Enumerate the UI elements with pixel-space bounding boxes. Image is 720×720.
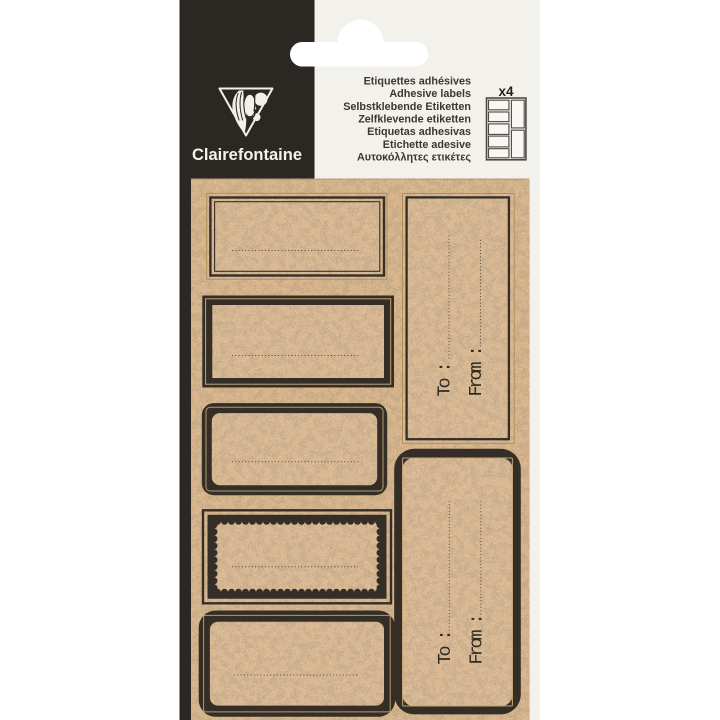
svg-text:x4: x4	[498, 84, 514, 99]
svg-text:Zelfklevende etiketten: Zelfklevende etiketten	[358, 114, 471, 126]
svg-text:From :: From :	[466, 348, 487, 396]
svg-text:Αυτοκόλλητες ετικέτες: Αυτοκόλλητες ετικέτες	[357, 151, 471, 163]
svg-text:Adhesive labels: Adhesive labels	[389, 88, 471, 100]
svg-text:Selbstklebende Etiketten: Selbstklebende Etiketten	[343, 101, 471, 113]
svg-text:Etichette adesive: Etichette adesive	[383, 139, 471, 151]
svg-text:To :: To :	[435, 632, 456, 664]
svg-text:From :: From :	[466, 616, 487, 664]
svg-text:Clairefontaine: Clairefontaine	[192, 146, 302, 164]
svg-text:Etiquetas adhesivas: Etiquetas adhesivas	[367, 126, 471, 138]
svg-text:To :: To :	[435, 364, 456, 396]
svg-text:Etiquettes adhésives: Etiquettes adhésives	[364, 76, 471, 88]
